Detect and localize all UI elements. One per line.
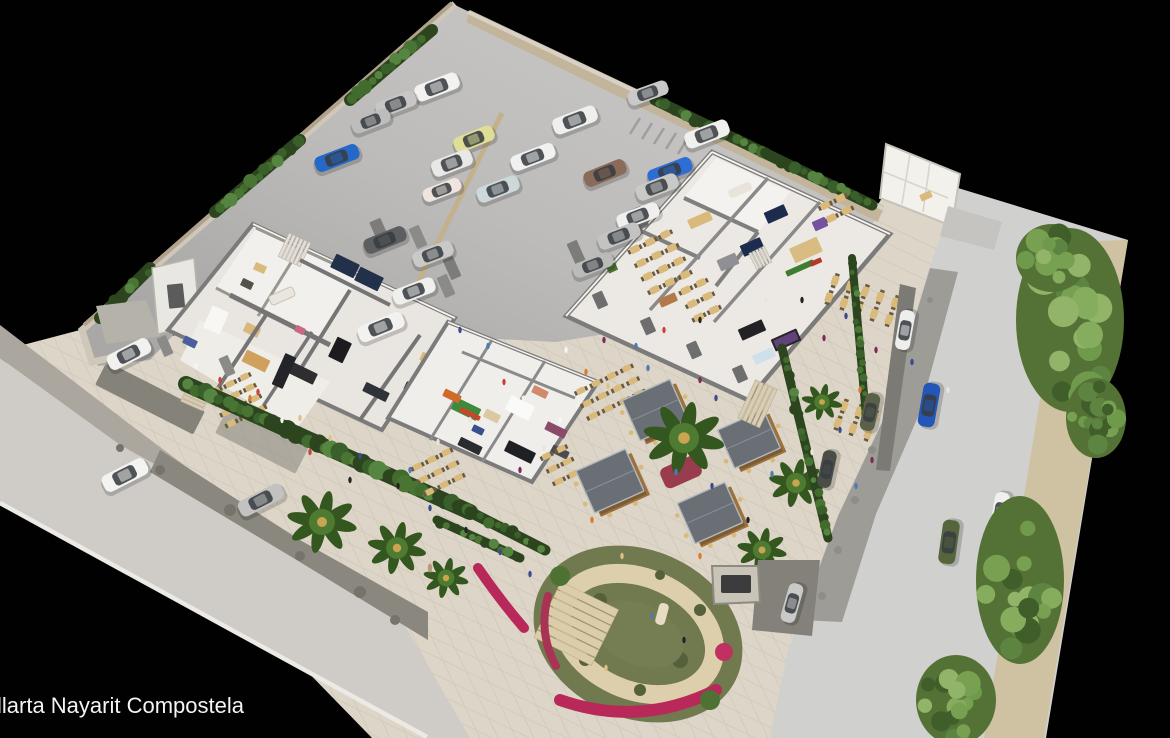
svg-text:llarta Nayarit Compostela: llarta Nayarit Compostela xyxy=(0,693,245,718)
